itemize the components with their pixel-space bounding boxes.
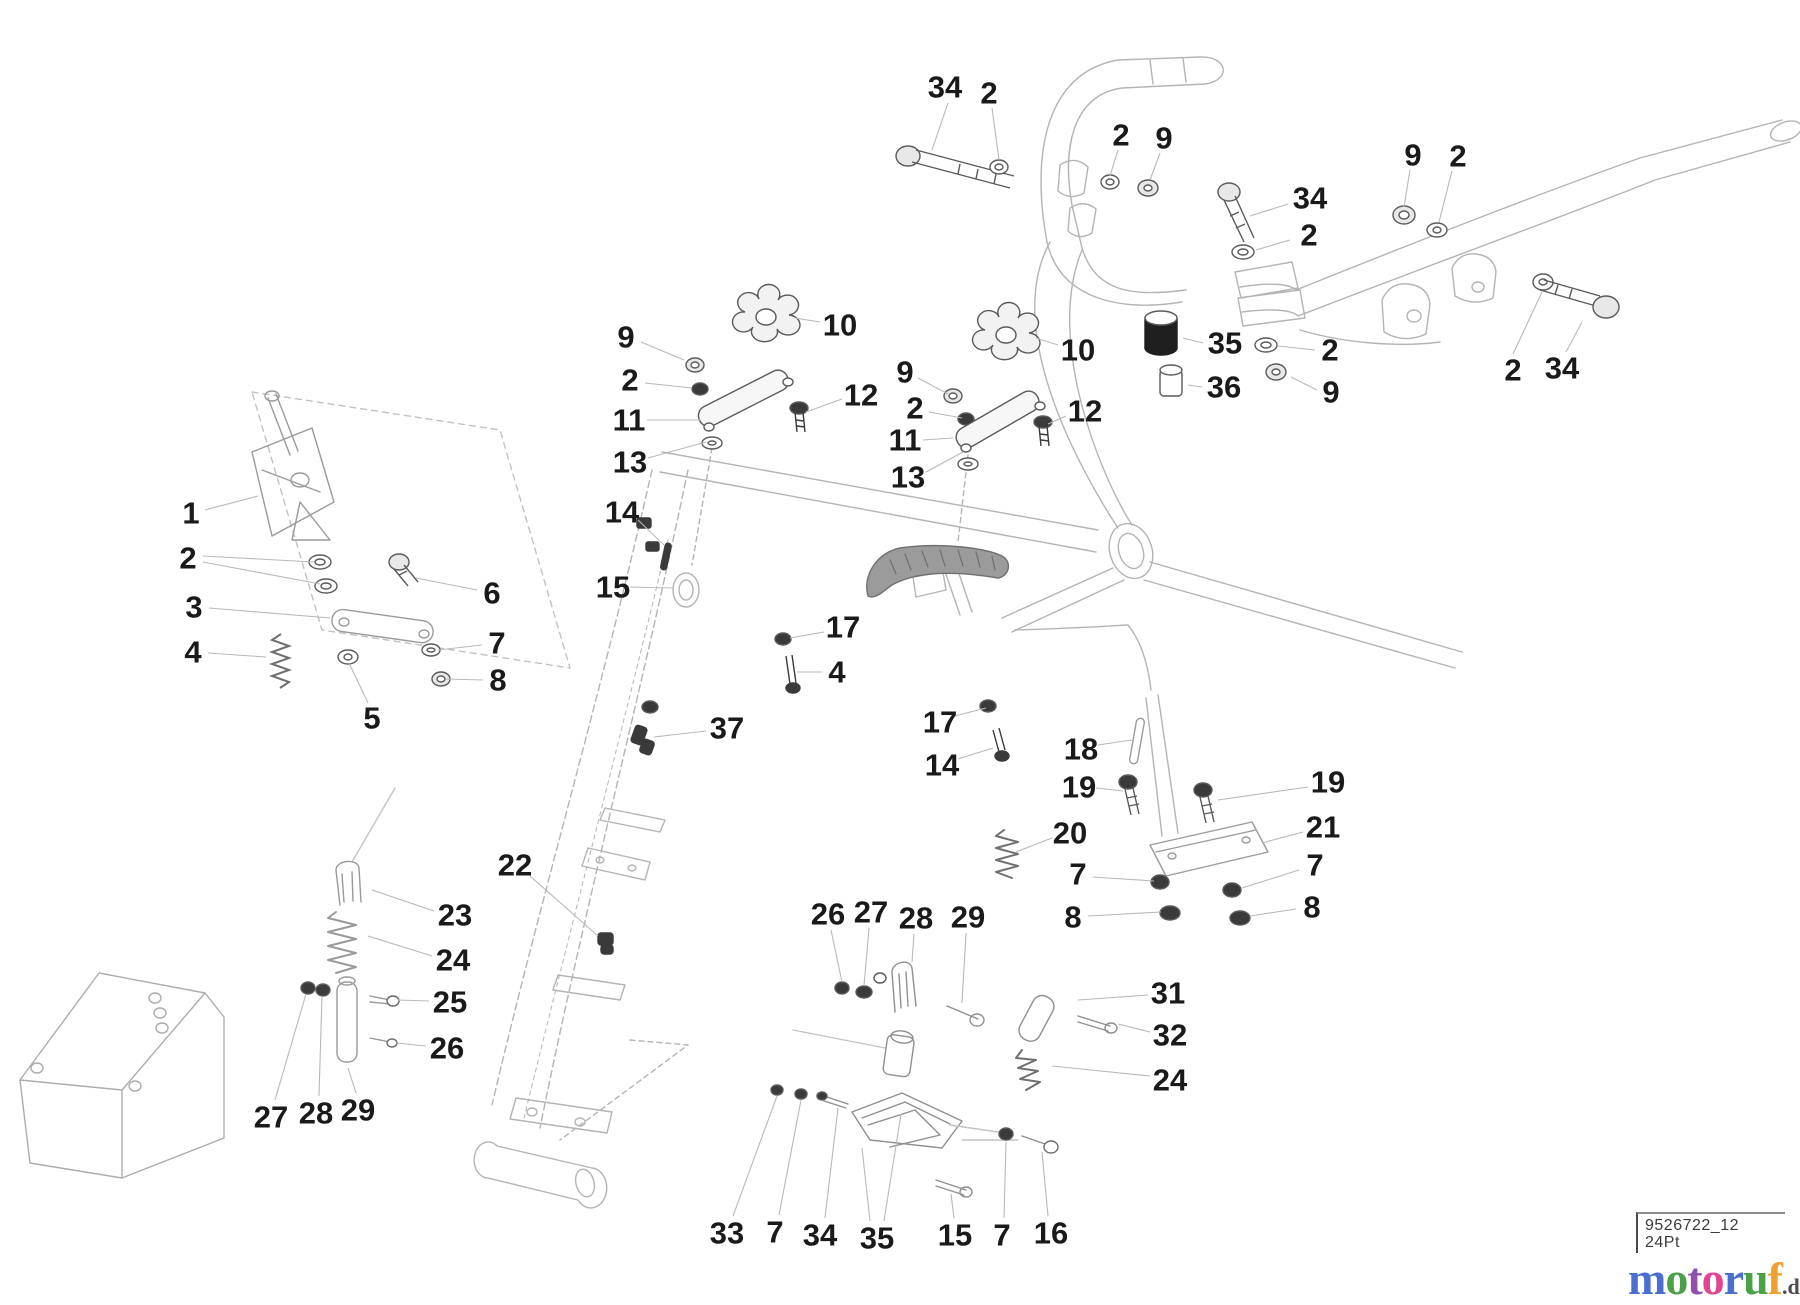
part-callout-7: 7	[993, 1218, 1010, 1253]
leader-line	[397, 1043, 426, 1046]
leader-line	[209, 608, 330, 618]
washer	[642, 701, 658, 713]
part-callout-14: 14	[925, 748, 960, 783]
leader-line	[208, 653, 266, 657]
leader-line	[733, 1096, 777, 1216]
leader-line	[825, 1108, 838, 1218]
washer-28	[316, 984, 330, 996]
leader-line	[864, 928, 869, 986]
leader-line	[205, 496, 258, 510]
latch-assembly	[252, 391, 435, 644]
part-callout-34: 34	[1293, 181, 1328, 216]
leader-line	[1088, 912, 1161, 916]
leader-line	[951, 1194, 954, 1218]
leader-line	[923, 438, 953, 440]
leader-line	[1250, 204, 1288, 216]
leader-line	[912, 934, 914, 962]
part-callout-4: 4	[184, 635, 202, 670]
logo-suffix: .de	[1782, 1274, 1800, 1299]
fasteners	[272, 146, 1619, 1140]
leader-line	[1098, 740, 1132, 745]
part-callout-28: 28	[899, 901, 933, 936]
leader-line	[1262, 832, 1303, 843]
leader-line	[641, 342, 684, 360]
part-callout-37: 37	[710, 711, 744, 746]
part-callout-12: 12	[1068, 394, 1102, 429]
part-callout-21: 21	[1306, 810, 1340, 845]
nut-7	[1151, 875, 1169, 889]
bolt-19	[1119, 775, 1139, 815]
leader-line	[790, 632, 824, 638]
logo-letter: t	[1687, 1253, 1701, 1304]
part-callout-31: 31	[1151, 976, 1185, 1011]
part-callout-22: 22	[498, 848, 532, 883]
part-callout-17: 17	[923, 705, 957, 740]
part-callout-17: 17	[826, 610, 860, 645]
leader-line	[1150, 153, 1160, 180]
leader-line	[779, 1100, 801, 1215]
leader-line	[1242, 870, 1299, 888]
leader-line	[1218, 787, 1308, 800]
leader-line	[831, 930, 842, 982]
leader-line	[884, 1114, 901, 1221]
part-callout-28: 28	[299, 1096, 333, 1131]
part-callout-13: 13	[891, 460, 925, 495]
part-callout-20: 20	[1053, 816, 1087, 851]
part-callout-26: 26	[811, 897, 845, 932]
part-callout-19: 19	[1311, 765, 1345, 800]
part-callout-2: 2	[980, 76, 997, 111]
part-callout-35: 35	[860, 1221, 894, 1256]
part-callout-2: 2	[1321, 333, 1338, 368]
nut-7	[1223, 883, 1241, 897]
part-callout-5: 5	[363, 701, 380, 736]
part-callout-35: 35	[1208, 326, 1242, 361]
washer-27	[856, 986, 872, 998]
link-11	[695, 367, 792, 430]
part-callout-2: 2	[1300, 218, 1317, 253]
part-callout-7: 7	[1306, 848, 1323, 883]
part-callout-11: 11	[889, 423, 922, 458]
leader-line	[1278, 346, 1315, 350]
bolt-12-right	[1034, 416, 1052, 446]
leader-line	[645, 383, 692, 388]
part-callout-26: 26	[430, 1031, 464, 1066]
part-callout-33: 33	[710, 1216, 744, 1251]
leader-line	[654, 731, 706, 737]
part-callout-2: 2	[1112, 118, 1129, 153]
spring-4	[272, 634, 289, 688]
leader-line	[992, 108, 999, 160]
part-callout-34: 34	[928, 70, 963, 105]
leader-line	[958, 748, 993, 759]
callout-layer: 3422992342352369234921113101292111310121…	[179, 70, 1582, 1256]
part-callout-2: 2	[1449, 139, 1466, 174]
part-callout-2: 2	[621, 363, 638, 398]
part-callout-29: 29	[341, 1093, 375, 1128]
leader-line	[1183, 338, 1203, 343]
part-callout-3: 3	[185, 590, 202, 625]
part-callout-24: 24	[1153, 1063, 1188, 1098]
knob-10-right	[973, 302, 1040, 359]
shock-absorber-assembly	[328, 788, 399, 1062]
leader-line	[368, 936, 432, 956]
part-callout-15: 15	[938, 1218, 972, 1253]
leader-line	[530, 876, 598, 936]
part-callout-7: 7	[488, 626, 505, 661]
leader-line	[1078, 995, 1148, 1000]
lever-assembly	[824, 1093, 1058, 1197]
part-callout-25: 25	[433, 985, 467, 1020]
part-callout-19: 19	[1062, 770, 1096, 805]
leader-line	[955, 708, 986, 716]
drawing-number-box: 9526722_12 24Pt	[1636, 1212, 1785, 1253]
leader-line	[648, 442, 706, 458]
nut-17	[980, 700, 996, 712]
part-callout-4: 4	[828, 655, 846, 690]
leader-line	[348, 1068, 356, 1093]
logo-letter: o	[1665, 1253, 1687, 1304]
part-callout-9: 9	[1404, 138, 1421, 173]
washer-7	[795, 1089, 807, 1099]
part-callout-8: 8	[1064, 900, 1081, 935]
leader-line	[1250, 909, 1296, 916]
leader-line	[1404, 170, 1410, 207]
part-callout-12: 12	[844, 378, 878, 413]
handlebar-assembly	[1035, 57, 1800, 528]
leader-line	[862, 1148, 870, 1221]
logo-letter: r	[1724, 1253, 1743, 1304]
part-callout-34: 34	[1545, 351, 1580, 386]
nut-17	[775, 633, 791, 645]
sleeve-36	[1160, 365, 1182, 396]
leader-line	[1096, 788, 1123, 791]
part-callout-9: 9	[896, 355, 913, 390]
leader-line	[962, 933, 966, 1003]
housing-box	[20, 973, 224, 1178]
bolt-6	[389, 554, 418, 586]
leader-line	[1188, 385, 1202, 387]
leader-line	[319, 996, 322, 1096]
motoruf-logo: motoruf.de	[1628, 1252, 1800, 1305]
leader-line	[929, 412, 962, 418]
washer-33	[771, 1085, 783, 1095]
leader-line	[1439, 171, 1452, 222]
part-callout-8: 8	[489, 663, 506, 698]
leader-line	[1110, 150, 1118, 176]
leader-line	[630, 587, 673, 588]
knob-10-left	[733, 284, 800, 341]
leader-line	[398, 1000, 429, 1001]
part-callout-7: 7	[766, 1215, 783, 1250]
logo-letter: u	[1743, 1253, 1768, 1304]
leader-line	[1042, 1152, 1048, 1216]
part-callout-15: 15	[596, 570, 630, 605]
diagram-canvas: 3422992342352369234921113101292111310121…	[0, 0, 1800, 1305]
part-callout-8: 8	[1303, 890, 1320, 925]
leader-line	[1291, 377, 1317, 390]
part-callout-29: 29	[951, 900, 985, 935]
leader-line	[926, 452, 963, 472]
part-callout-10: 10	[1061, 333, 1095, 368]
washer-2	[692, 383, 708, 395]
part-callout-32: 32	[1153, 1018, 1187, 1053]
leader-line	[203, 556, 314, 562]
plot-size: 24Pt	[1645, 1234, 1777, 1251]
diagram-page: 3422992342352369234921113101292111310121…	[0, 0, 1800, 1305]
part-callout-23: 23	[438, 898, 472, 933]
washer	[874, 973, 886, 983]
part-callout-18: 18	[1064, 732, 1098, 767]
leader-line	[349, 663, 368, 703]
leader-line	[1256, 240, 1290, 250]
part-callout-34: 34	[803, 1218, 838, 1253]
leader-line	[438, 645, 482, 650]
leader-line	[1004, 1142, 1006, 1218]
drawing-number: 9526722_12	[1645, 1217, 1777, 1234]
leader-line	[275, 994, 306, 1100]
leader-line	[1016, 838, 1052, 852]
bolt-19	[1194, 783, 1214, 823]
bolt-14-mid	[993, 728, 1009, 761]
bolt-12-left	[790, 402, 808, 432]
logo-letter: o	[1702, 1253, 1724, 1304]
bolt-4-mid	[786, 655, 800, 693]
part-callout-2: 2	[906, 391, 923, 426]
leader-line	[1093, 877, 1154, 881]
clip-22	[598, 933, 613, 954]
clip-37	[630, 724, 655, 755]
part-callout-36: 36	[1207, 370, 1241, 405]
nut-8	[1160, 906, 1180, 920]
part-callout-6: 6	[483, 576, 500, 611]
leader-line	[372, 890, 434, 911]
screw-34-head	[817, 1092, 827, 1100]
part-callout-9: 9	[1322, 375, 1339, 410]
washer-7	[999, 1128, 1013, 1140]
part-callout-16: 16	[1034, 1216, 1068, 1251]
leader-line	[806, 399, 842, 412]
leader-line	[1118, 1024, 1150, 1032]
part-callout-24: 24	[436, 943, 471, 978]
part-callout-11: 11	[613, 403, 646, 438]
leader-line	[932, 103, 948, 150]
part-callout-1: 1	[182, 496, 199, 531]
leader-line	[416, 578, 477, 590]
part-callout-13: 13	[613, 445, 647, 480]
washer-26	[835, 982, 849, 994]
part-callout-27: 27	[254, 1100, 288, 1135]
leader-line	[446, 679, 483, 680]
logo-letter: f	[1768, 1253, 1782, 1304]
part-callout-9: 9	[617, 320, 634, 355]
leader-line	[1513, 292, 1542, 354]
bolt-34-right	[1218, 183, 1254, 242]
leader-line	[1566, 322, 1582, 352]
nut-8	[1230, 911, 1250, 925]
bushing-35	[1145, 311, 1177, 355]
part-callout-27: 27	[854, 895, 888, 930]
control-plate-assembly	[996, 718, 1268, 878]
leader-line	[1052, 1066, 1150, 1076]
logo-letter: m	[1628, 1253, 1665, 1304]
part-callout-2: 2	[179, 541, 196, 576]
part-callout-2: 2	[1504, 353, 1521, 388]
part-callout-10: 10	[823, 308, 857, 343]
part-callout-14: 14	[605, 495, 640, 530]
clip	[646, 542, 659, 551]
part-callout-7: 7	[1069, 857, 1086, 892]
washer-27	[301, 982, 315, 994]
part-callout-9: 9	[1155, 121, 1172, 156]
column-assembly	[474, 470, 688, 1208]
